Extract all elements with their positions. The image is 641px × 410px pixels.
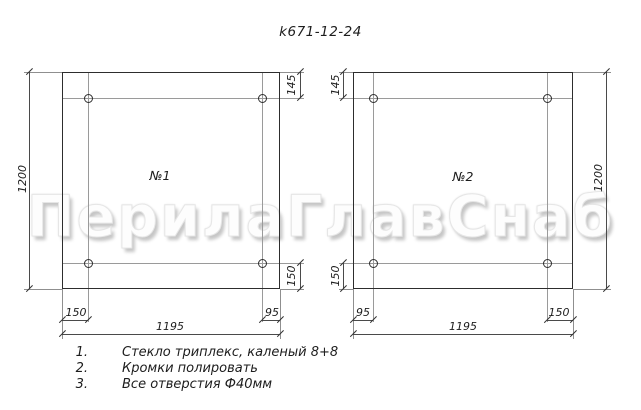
panel2-hole-bottom-right [543,259,552,268]
panel1-bottom-offset-dim-line [300,263,301,289]
panel1-hole-bottom-left [84,259,93,268]
panel1-top-offset-dim-line [300,72,301,98]
panel2-bottom-offset-dim-label: 150 [330,259,342,293]
note-text: Стекло триплекс, каленый 8+8 [122,345,338,360]
panel2-top-offset-dim-label: 145 [330,68,342,102]
note-text: Все отверстия Ф40мм [122,377,272,392]
panel2-height-dim-label: 1200 [593,161,605,195]
panel1-right-inset-dim-label: 95 [252,307,292,319]
panel1-number-label: №1 [140,168,180,183]
panel1-left-inset-dim-label: 150 [56,307,96,319]
panel1-height-dim-line [29,72,30,289]
panel2-right-inset-dim-line [547,320,573,321]
panel1-top-offset-dim-label: 145 [286,68,298,102]
panel1-left-inset-dim-line [62,320,88,321]
panel2-left-inset-dim-label: 95 [343,307,383,319]
note-number: 2. [64,361,88,376]
panel1-hole-bottom-right [258,259,267,268]
drawing-title: k671-12-24 [0,24,641,40]
panel2-bottom-offset-dim-line [343,263,344,289]
note-number: 3. [64,377,88,392]
panel1-height-dim-label: 1200 [17,162,29,196]
panel2-width-dim-line [353,334,573,335]
panel2-right-inset-dim-label: 150 [539,307,579,319]
panel1-bottom-offset-dim-label: 150 [286,259,298,293]
panel1-width-dim-label: 1195 [150,321,190,333]
drawing-sheet: ПерилаГлавСнаб k671-12-24 [0,0,641,410]
panel2-hole-top-right [543,94,552,103]
panel1-width-dim-line [62,334,280,335]
panel2-top-offset-dim-line [343,72,344,98]
panel2-hole-top-left [369,94,378,103]
panel1-hole-top-left [84,94,93,103]
panel2-width-dim-label: 1195 [443,321,483,333]
note-text: Кромки полировать [122,361,258,376]
panel2-height-dim-line [606,72,607,289]
note-number: 1. [64,345,88,360]
panel2-number-label: №2 [443,169,483,184]
panel2-hole-bottom-left [369,259,378,268]
panel1-hole-top-right [258,94,267,103]
